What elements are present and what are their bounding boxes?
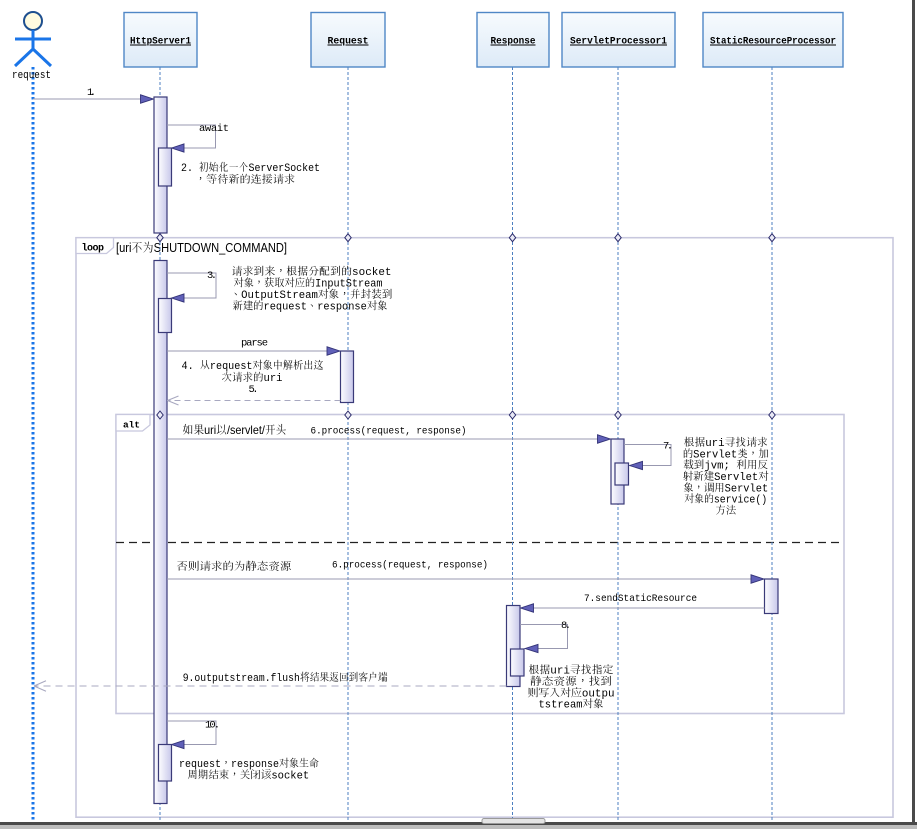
svg-text:的Servlet类，加: 的Servlet类，加	[683, 447, 769, 461]
svg-text:5.: 5.	[249, 384, 259, 396]
svg-text:2. 初始化一个ServerSocket: 2. 初始化一个ServerSocket	[181, 161, 320, 175]
svg-text:，等待新的连接请求: ，等待新的连接请求	[195, 173, 295, 187]
svg-text:如果uri以/servlet/开头: 如果uri以/servlet/开头	[183, 423, 287, 437]
svg-text:周期结束，关闭该socket: 周期结束，关闭该socket	[187, 769, 309, 783]
svg-text:loop: loop	[82, 243, 105, 255]
svg-text:10.: 10.	[205, 720, 220, 732]
svg-text:ServletProcessor1: ServletProcessor1	[570, 36, 667, 48]
svg-text:新建的request、response对象: 新建的request、response对象	[233, 300, 388, 314]
svg-text:7.: 7.	[663, 440, 673, 452]
svg-text:4. 从request对象中解析出这: 4. 从request对象中解析出这	[182, 359, 324, 373]
svg-text:否则请求的为静态资源: 否则请求的为静态资源	[176, 560, 291, 574]
svg-text:载到jvm; 利用反: 载到jvm; 利用反	[683, 459, 768, 473]
svg-text:alt: alt	[123, 420, 140, 431]
svg-text:await: await	[199, 123, 229, 135]
svg-text:次请求的uri: 次请求的uri	[222, 371, 283, 385]
svg-text:request: request	[12, 70, 51, 82]
svg-text:8.: 8.	[561, 620, 571, 632]
svg-text:、OutputStream对象，并封装到: 、OutputStream对象，并封装到	[231, 288, 393, 302]
svg-text:StaticResourceProcessor: StaticResourceProcessor	[710, 36, 836, 48]
svg-text:parse: parse	[241, 338, 268, 350]
svg-text:9.outputstream.flush将结果返回到客户端: 9.outputstream.flush将结果返回到客户端	[183, 671, 388, 685]
svg-text:6.process(request, response): 6.process(request, response)	[311, 426, 467, 438]
svg-text:根据uri寻找指定: 根据uri寻找指定	[529, 664, 614, 678]
svg-text:对象的service(): 对象的service()	[684, 493, 767, 507]
svg-text:则写入对应outpu: 则写入对应outpu	[528, 687, 615, 701]
svg-text:1.: 1.	[87, 87, 96, 99]
svg-text:方法: 方法	[715, 504, 736, 518]
svg-text:象，调用Servlet: 象，调用Servlet	[683, 481, 768, 495]
svg-text:tstream对象: tstream对象	[539, 698, 604, 712]
svg-text:射新建Servlet对: 射新建Servlet对	[683, 470, 769, 484]
svg-text:Response: Response	[491, 37, 536, 48]
svg-text:3.: 3.	[207, 270, 217, 282]
svg-text:7.sendStaticResource: 7.sendStaticResource	[584, 593, 697, 605]
svg-text:Request: Request	[328, 37, 369, 48]
svg-text:request，response对象生命: request，response对象生命	[179, 757, 319, 771]
svg-text:[uri不为SHUTDOWN_COMMAND]: [uri不为SHUTDOWN_COMMAND]	[116, 241, 287, 255]
svg-text:对象，获取对应的InputStream: 对象，获取对应的InputStream	[234, 276, 383, 290]
svg-text:HttpServer1: HttpServer1	[130, 37, 191, 48]
svg-text:静态资源，找到: 静态资源，找到	[530, 675, 612, 689]
svg-text:根据uri寻找请求: 根据uri寻找请求	[684, 436, 768, 450]
svg-text:请求到来，根据分配到的socket: 请求到来，根据分配到的socket	[232, 265, 392, 279]
svg-text:6.process(request, response): 6.process(request, response)	[332, 560, 488, 572]
